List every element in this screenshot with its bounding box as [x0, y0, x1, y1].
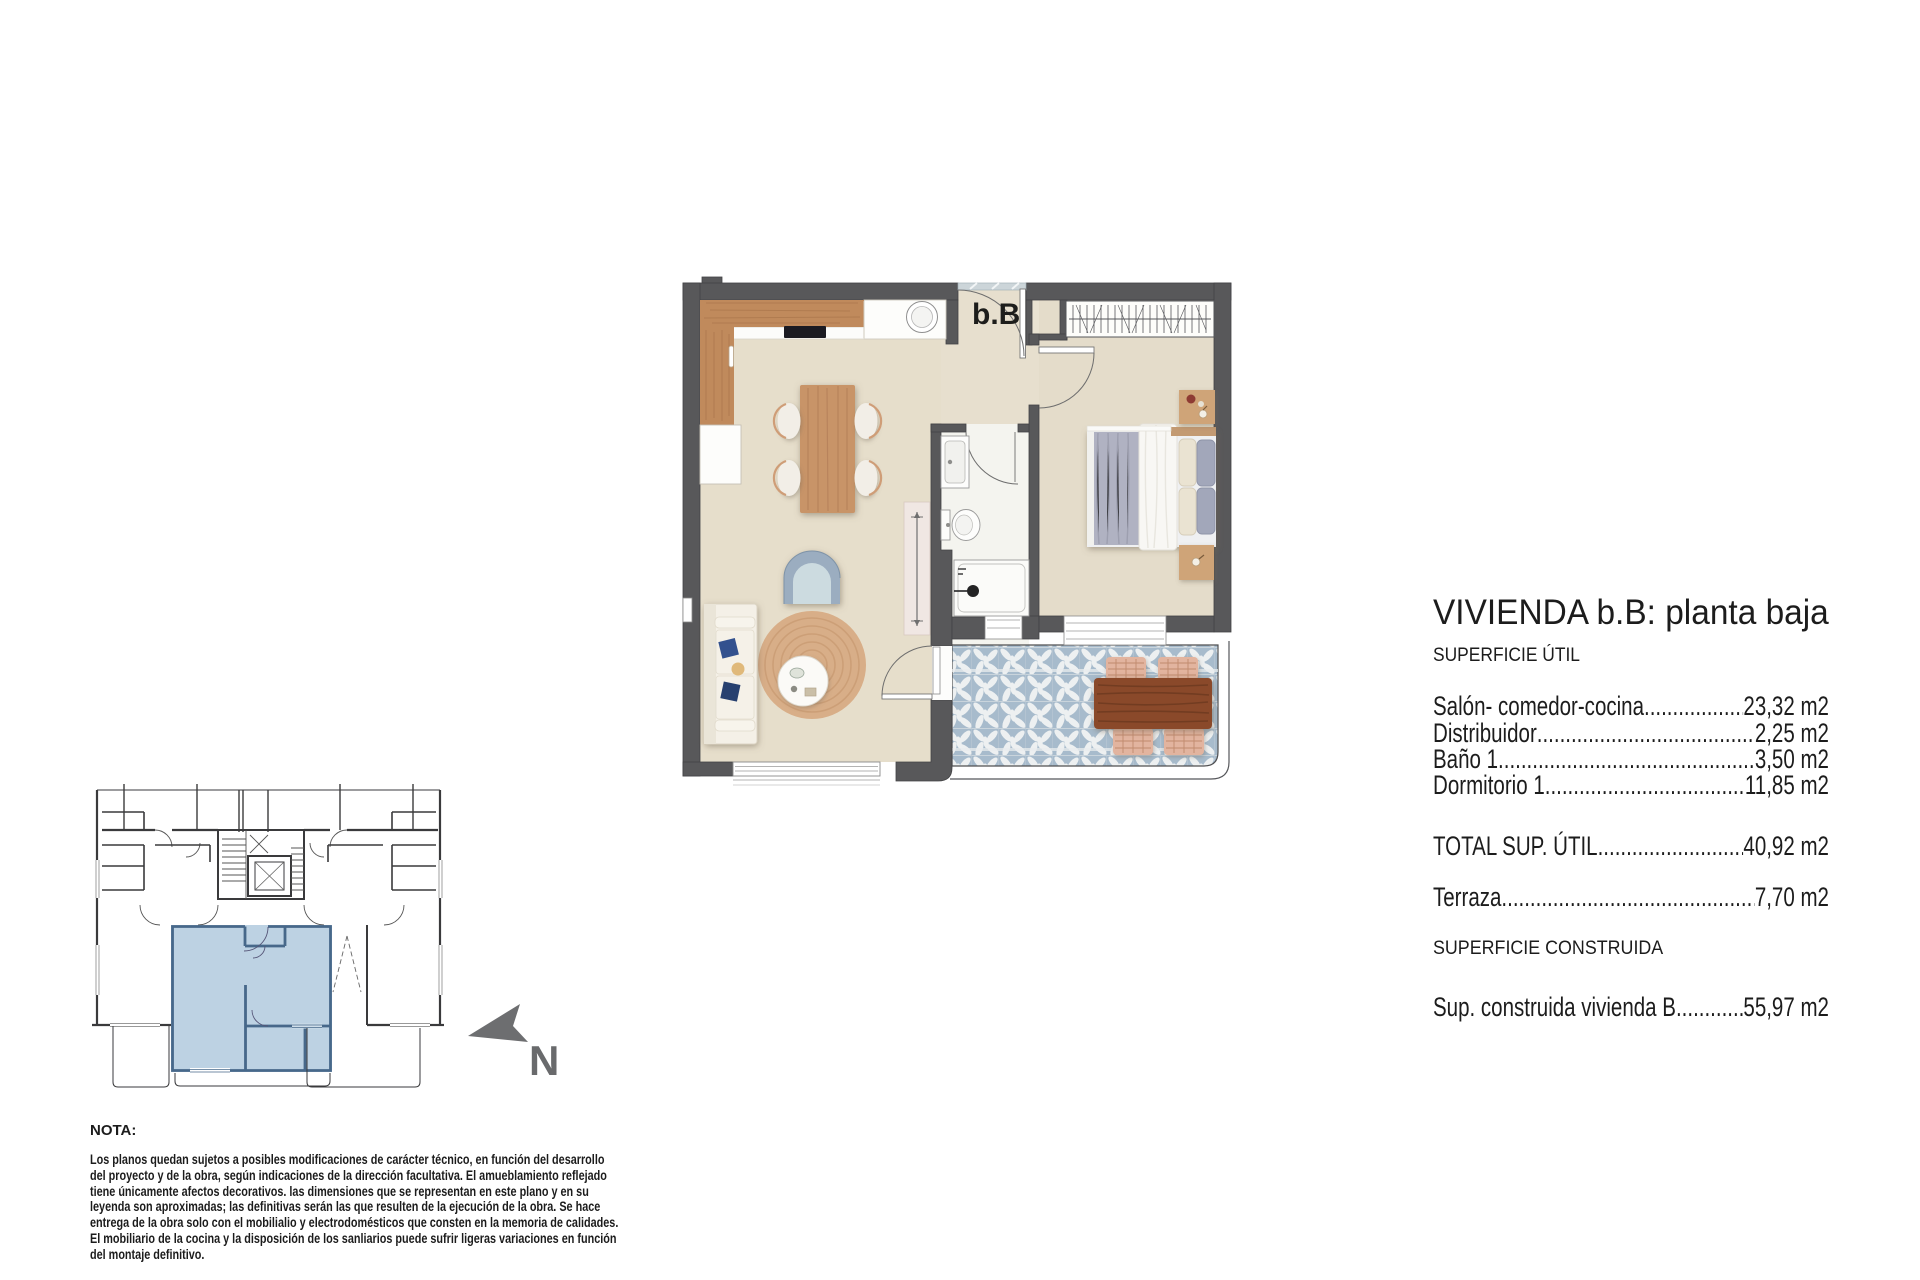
svg-text:N: N	[529, 1037, 559, 1084]
svg-text:b.B: b.B	[972, 298, 1020, 331]
